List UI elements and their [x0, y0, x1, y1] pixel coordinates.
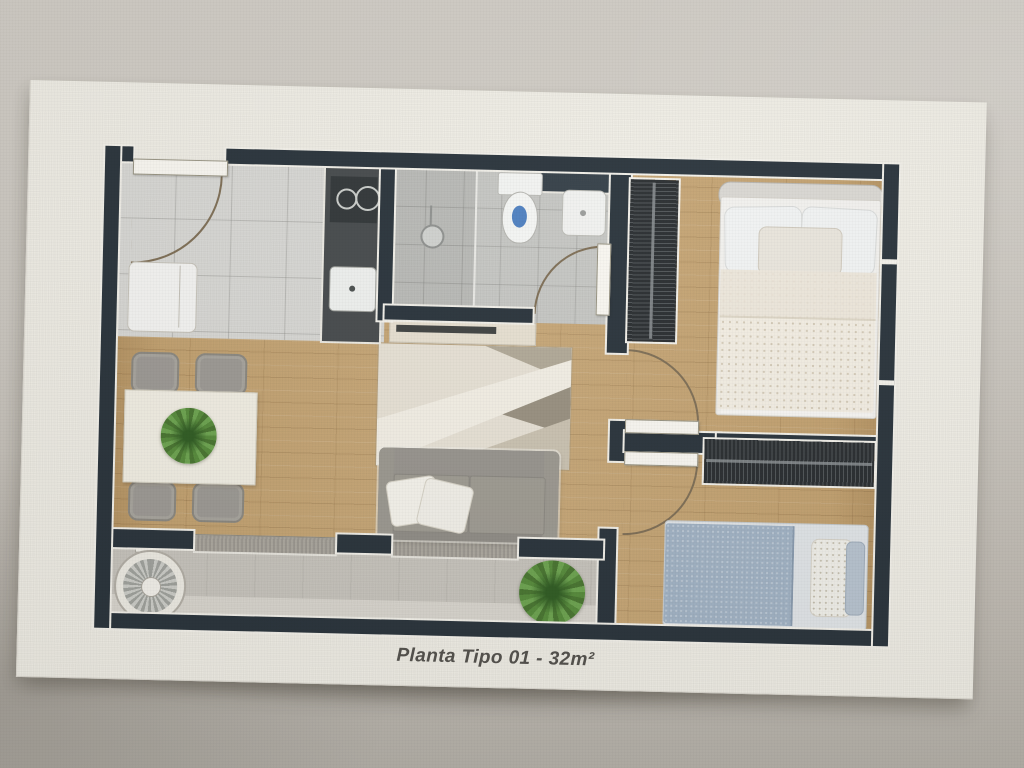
duvet [717, 269, 876, 413]
tv-console [389, 320, 537, 346]
sofa-seat-cushion [468, 475, 545, 535]
toilet-water [512, 205, 528, 227]
refrigerator-door-split [178, 266, 180, 328]
double-bed [715, 196, 881, 419]
window-glass-track-left [193, 534, 337, 556]
burner-right-icon [355, 186, 381, 212]
toilet-bowl [501, 191, 538, 244]
tv [396, 325, 496, 334]
window-wall-segment [519, 539, 603, 559]
window-wall-segment [337, 534, 391, 553]
single-bed [662, 520, 868, 631]
window-notch-bedroom1 [880, 259, 897, 264]
duvet-fold [720, 269, 877, 321]
window-wall-segment [111, 529, 193, 549]
single-bed-blanket [663, 523, 794, 626]
entry-door-leaf [133, 158, 228, 176]
floor-plan-board: Planta Tipo 01 - 32m² [16, 80, 987, 699]
dining-chair [131, 351, 180, 394]
wall-door-pier [609, 421, 625, 461]
window-notch-bedroom1-b [877, 380, 894, 385]
single-bed-pillow-back [845, 541, 866, 615]
floor-plan [94, 146, 899, 647]
basin-drain-icon [580, 210, 586, 216]
accent-pillow [758, 226, 843, 276]
bedroom1-door-leaf [625, 419, 699, 435]
wardrobe-bedroom2 [704, 439, 875, 487]
sofa [377, 447, 559, 543]
dining-chair [128, 480, 177, 521]
cooktop [330, 176, 378, 223]
sink-drain-icon [349, 286, 355, 292]
bedroom2-door-leaf [624, 451, 698, 467]
kitchen-counter [322, 167, 383, 342]
wardrobe-bedroom1 [627, 179, 679, 342]
kitchen-sink [329, 266, 377, 312]
dining-chair [192, 482, 245, 523]
refrigerator [127, 261, 198, 333]
photo-scene: Planta Tipo 01 - 32m² [0, 0, 1024, 768]
washbasin [561, 190, 606, 237]
bathroom-door-leaf [596, 243, 612, 315]
dining-chair [195, 353, 248, 396]
